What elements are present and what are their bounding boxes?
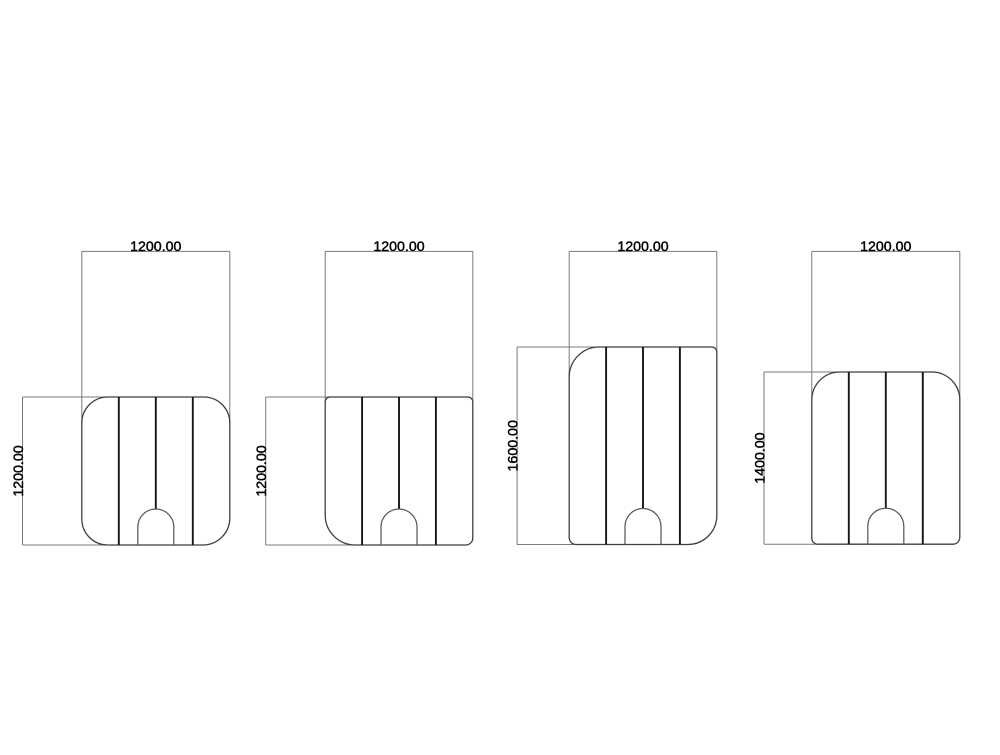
svg-text:1200.00: 1200.00 [254, 445, 270, 496]
svg-text:1600.00: 1600.00 [506, 420, 522, 471]
svg-text:1200.00: 1200.00 [860, 239, 911, 255]
svg-text:1200.00: 1200.00 [617, 239, 668, 255]
svg-text:1200.00: 1200.00 [11, 445, 27, 496]
svg-text:1400.00: 1400.00 [752, 432, 768, 483]
svg-text:1200.00: 1200.00 [373, 239, 424, 255]
svg-text:1200.00: 1200.00 [130, 239, 181, 255]
